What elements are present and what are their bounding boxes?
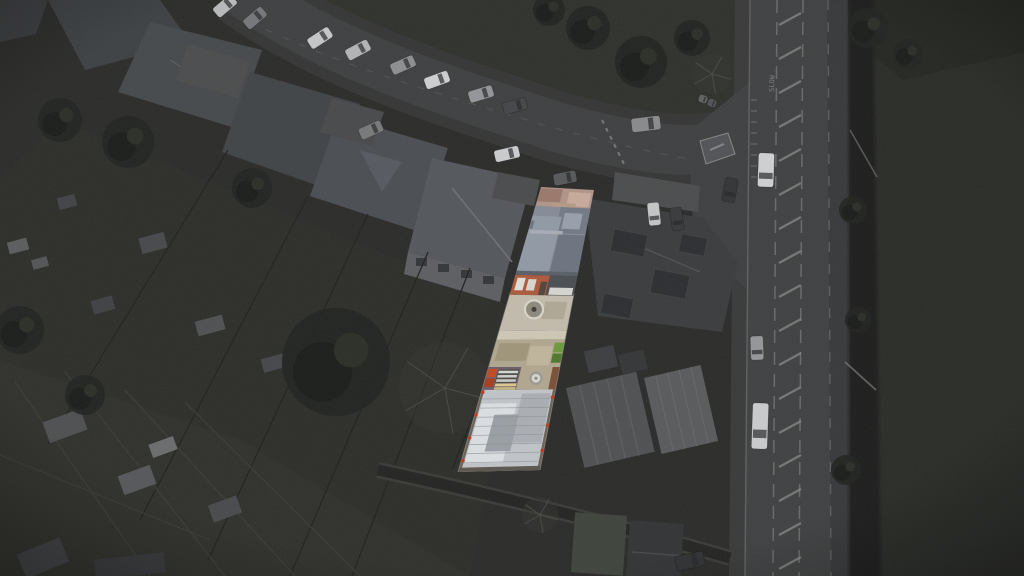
aerial-photo: Aerial drone view of a residential neigh…: [0, 0, 1024, 576]
vignette-overlay: [0, 0, 1024, 576]
aerial-photo-canvas: SLOW: [0, 0, 1024, 576]
